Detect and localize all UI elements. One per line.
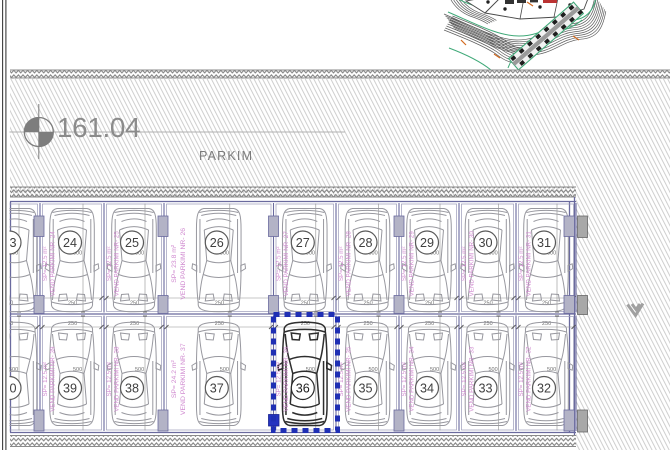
svg-text:30: 30 (478, 236, 492, 250)
svg-text:SP= 23.8 m²: SP= 23.8 m² (171, 244, 178, 283)
svg-text:SP= 12.5 m²: SP= 12.5 m² (518, 247, 525, 282)
svg-text:SP= 12.5 m²: SP= 12.5 m² (42, 362, 49, 397)
svg-text:SP= 12.5 m²: SP= 12.5 m² (338, 247, 345, 282)
svg-text:38: 38 (125, 382, 139, 396)
svg-text:PARKIM: PARKIM (199, 149, 253, 163)
svg-text:VEND PARKIMI NR- 35: VEND PARKIMI NR- 35 (346, 346, 353, 412)
svg-text:VEND PARKIMI NR- 31: VEND PARKIMI NR- 31 (526, 231, 533, 297)
svg-text:250: 250 (130, 301, 139, 307)
svg-text:250: 250 (215, 301, 224, 307)
svg-text:33: 33 (478, 382, 492, 396)
svg-text:SP= 12.5 m²: SP= 12.5 m² (106, 247, 113, 282)
svg-text:39: 39 (63, 382, 77, 396)
svg-text:250: 250 (542, 301, 551, 307)
svg-text:24: 24 (63, 236, 77, 250)
svg-text:36: 36 (296, 382, 310, 396)
svg-text:SP= 12.5 m²: SP= 12.5 m² (518, 362, 525, 397)
svg-text:SP= 24.2 m²: SP= 24.2 m² (171, 359, 178, 398)
svg-text:VEND PARKIMI NR- 29: VEND PARKIMI NR- 29 (409, 231, 416, 297)
svg-text:VEND PARKIMI NR- 25: VEND PARKIMI NR- 25 (114, 231, 121, 297)
svg-text:SP= 12.5 m²: SP= 12.5 m² (338, 362, 345, 397)
svg-text:VEND PARKIMI NR- 26: VEND PARKIMI NR- 26 (180, 228, 187, 300)
svg-text:37: 37 (210, 382, 224, 396)
svg-text:32: 32 (537, 382, 551, 396)
svg-text:VEND PARKIMI NR- 32: VEND PARKIMI NR- 32 (526, 346, 533, 412)
svg-text:VEND PARKIMI NR- 27: VEND PARKIMI NR- 27 (283, 231, 290, 297)
svg-text:29: 29 (420, 236, 434, 250)
svg-text:VEND PARKIMI NR- 39: VEND PARKIMI NR- 39 (50, 346, 57, 412)
svg-text:VEND PARKIMI NR- 28: VEND PARKIMI NR- 28 (346, 231, 353, 297)
svg-text:161.04: 161.04 (57, 112, 140, 143)
svg-text:VEND PARKIMI NR- 34: VEND PARKIMI NR- 34 (409, 346, 416, 412)
svg-text:250: 250 (301, 301, 310, 307)
svg-text:SP= 12.5 m²: SP= 12.5 m² (276, 247, 283, 282)
svg-text:250: 250 (68, 301, 77, 307)
svg-text:250: 250 (484, 301, 493, 307)
svg-text:250: 250 (364, 301, 373, 307)
svg-text:26: 26 (210, 236, 224, 250)
svg-text:SP= 12.5 m²: SP= 12.5 m² (461, 362, 468, 397)
svg-text:VEND PARKIMI NR- 36: VEND PARKIMI NR- 36 (283, 346, 290, 412)
svg-text:35: 35 (358, 382, 372, 396)
svg-text:500: 500 (9, 367, 18, 373)
svg-text:31: 31 (537, 236, 551, 250)
svg-text:VEND PARKIMI NR- 37: VEND PARKIMI NR- 37 (180, 343, 187, 415)
svg-text:25: 25 (125, 236, 139, 250)
svg-text:SP= 12.5 m²: SP= 12.5 m² (401, 362, 408, 397)
svg-text:SP= 12.5 m²: SP= 12.5 m² (42, 247, 49, 282)
svg-text:SP= 12.5 m²: SP= 12.5 m² (401, 247, 408, 282)
svg-text:27: 27 (296, 236, 310, 250)
svg-text:VEND PARKIMI NR- 33: VEND PARKIMI NR- 33 (469, 346, 476, 412)
svg-text:SP= 12.5 m²: SP= 12.5 m² (276, 362, 283, 397)
svg-text:VEND PARKIMI NR- 38: VEND PARKIMI NR- 38 (114, 346, 121, 412)
svg-text:SP= 12.5 m²: SP= 12.5 m² (461, 247, 468, 282)
svg-text:250: 250 (425, 301, 434, 307)
svg-text:28: 28 (358, 236, 372, 250)
svg-text:34: 34 (420, 382, 434, 396)
svg-text:SP= 12.5 m²: SP= 12.5 m² (106, 362, 113, 397)
svg-text:VEND PARKIMI NR- 24: VEND PARKIMI NR- 24 (50, 231, 57, 297)
